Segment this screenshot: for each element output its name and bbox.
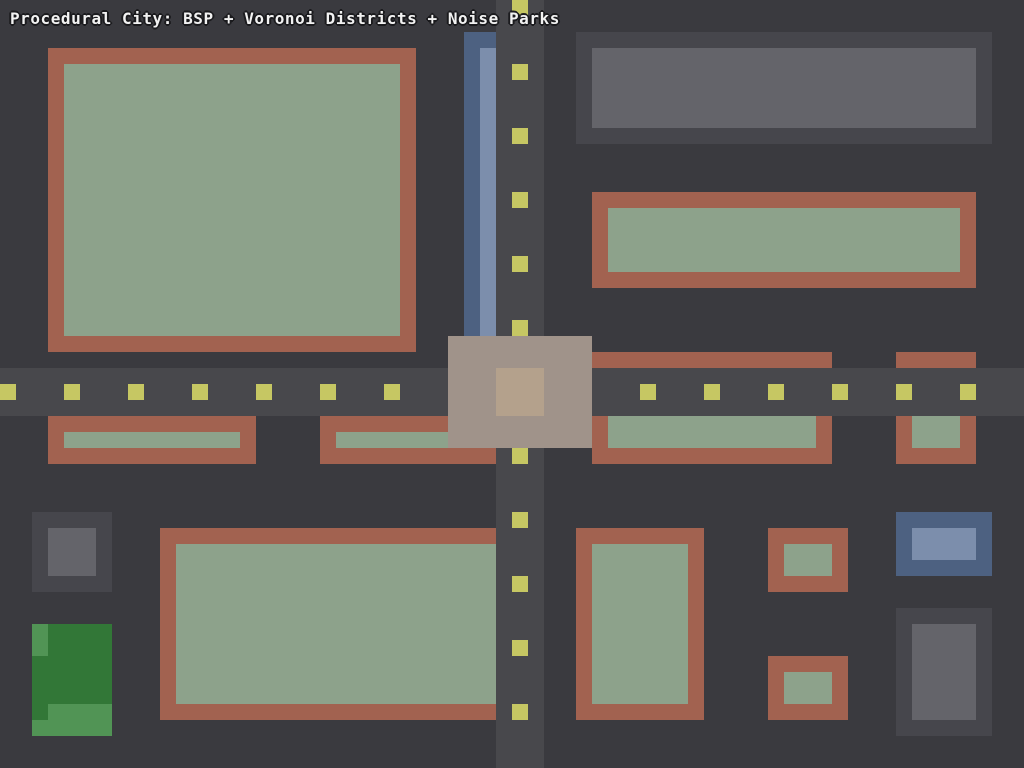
- building-residential-bottom-large-fill: [176, 544, 496, 704]
- road-dash-vertical: [512, 128, 528, 144]
- road-dash-horizontal: [0, 384, 16, 400]
- noise-park-bottomleft-grass-patch-2: [32, 720, 48, 736]
- building-residential-bottom-tall-fill: [592, 544, 688, 704]
- building-commercial-bottomright-fill: [912, 624, 976, 720]
- road-dash-horizontal: [256, 384, 272, 400]
- road-dash-vertical: [512, 640, 528, 656]
- building-strip-left-a-fill: [64, 432, 240, 448]
- road-dash-horizontal: [192, 384, 208, 400]
- road-dash-vertical: [512, 192, 528, 208]
- road-dash-horizontal: [640, 384, 656, 400]
- road-dash-vertical: [512, 512, 528, 528]
- road-dash-horizontal: [384, 384, 400, 400]
- road-dash-vertical: [512, 256, 528, 272]
- road-dash-horizontal: [896, 384, 912, 400]
- road-dash-horizontal: [320, 384, 336, 400]
- window-title: Procedural City: BSP + Voronoi Districts…: [10, 9, 560, 28]
- road-dash-horizontal: [832, 384, 848, 400]
- building-small-bottom-mid-lower-fill: [784, 672, 832, 704]
- procedural-city-canvas: Procedural City: BSP + Voronoi Districts…: [0, 0, 1024, 768]
- road-dash-vertical: [512, 64, 528, 80]
- building-civic-blue-bottomright-fill: [912, 528, 976, 560]
- noise-park-bottomleft-grass-patch-0: [32, 624, 48, 656]
- road-dash-horizontal: [704, 384, 720, 400]
- road-dash-horizontal: [768, 384, 784, 400]
- noise-park-bottomleft-grass-patch-1: [48, 704, 112, 736]
- road-dash-vertical: [512, 320, 528, 336]
- building-small-bottom-mid-upper-fill: [784, 544, 832, 576]
- plaza-intersection-inner: [496, 368, 544, 416]
- road-dash-vertical: [512, 704, 528, 720]
- road-dash-vertical: [512, 576, 528, 592]
- road-dash-horizontal: [128, 384, 144, 400]
- building-residential-topleft-large-fill: [64, 64, 400, 336]
- road-dash-horizontal: [960, 384, 976, 400]
- road-dash-vertical: [512, 448, 528, 464]
- building-residential-midright-wide-fill: [608, 208, 960, 272]
- building-commercial-topright-gray-fill: [592, 48, 976, 128]
- building-commercial-small-left-fill: [48, 528, 96, 576]
- road-dash-horizontal: [64, 384, 80, 400]
